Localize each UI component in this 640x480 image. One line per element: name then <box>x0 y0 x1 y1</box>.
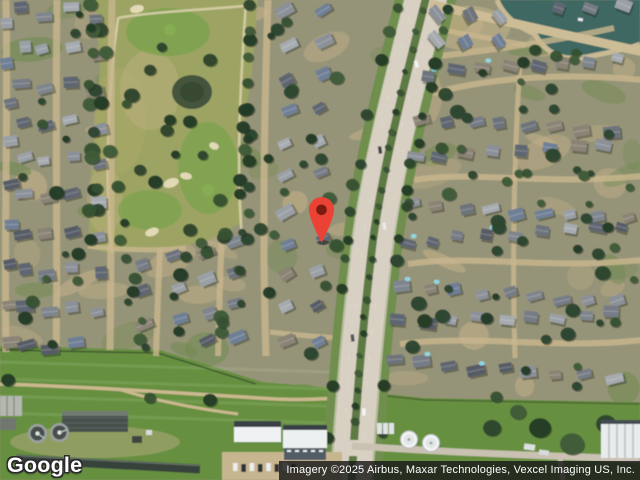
attribution-bar: Imagery ©2025 Airbus, Maxar Technologies… <box>279 461 640 480</box>
map-canvas[interactable]: Google Imagery ©2025 Airbus, Maxar Techn… <box>0 0 640 480</box>
attribution-text: Imagery ©2025 Airbus, Maxar Technologies… <box>286 464 635 476</box>
google-logo[interactable]: Google <box>7 453 82 478</box>
pin-shadow <box>316 240 329 245</box>
map-pin-icon <box>308 197 333 243</box>
pin-inner-circle <box>316 204 327 215</box>
location-marker[interactable] <box>305 195 338 245</box>
